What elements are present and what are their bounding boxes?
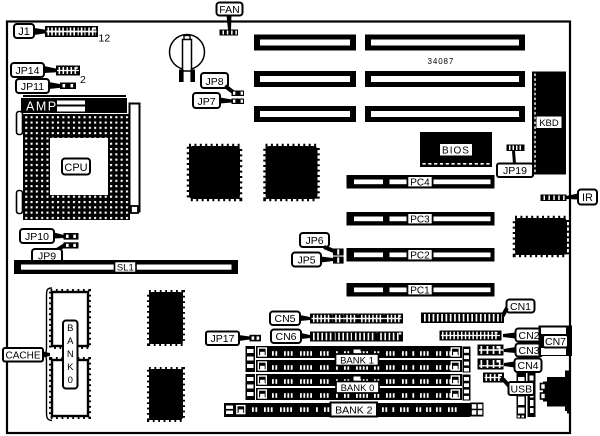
svg-text:JP10: JP10 (25, 231, 49, 243)
svg-text:CN1: CN1 (510, 301, 531, 313)
svg-text:JP6: JP6 (305, 235, 323, 247)
svg-text:JP19: JP19 (503, 165, 527, 177)
svg-text:PC3: PC3 (410, 214, 430, 225)
svg-text:PC1: PC1 (410, 285, 430, 296)
svg-text:12: 12 (99, 33, 111, 45)
svg-text:K: K (67, 362, 74, 373)
svg-text:PC4: PC4 (410, 177, 430, 188)
svg-text:CN3: CN3 (518, 345, 539, 357)
svg-text:IR: IR (582, 192, 593, 204)
svg-text:BANK 2: BANK 2 (335, 405, 373, 417)
svg-text:B: B (67, 323, 73, 334)
svg-text:CN7: CN7 (545, 336, 566, 348)
svg-text:BANK 1: BANK 1 (340, 355, 374, 366)
svg-text:AMP: AMP (26, 100, 58, 114)
svg-text:KBD: KBD (539, 118, 559, 129)
svg-text:2: 2 (80, 74, 86, 86)
svg-text:JP5: JP5 (297, 255, 315, 267)
svg-text:FAN: FAN (219, 4, 239, 16)
svg-text:PC2: PC2 (410, 250, 430, 261)
svg-text:SL1: SL1 (117, 263, 134, 274)
svg-text:CPU: CPU (64, 162, 87, 174)
svg-text:BANK 0: BANK 0 (341, 383, 375, 394)
svg-text:CN2: CN2 (518, 330, 539, 342)
svg-text:JP8: JP8 (205, 76, 223, 88)
svg-text:CACHE: CACHE (5, 351, 40, 362)
svg-text:CN5: CN5 (274, 313, 295, 325)
svg-text:CN4: CN4 (517, 360, 538, 372)
svg-text:N: N (67, 349, 74, 360)
svg-text:A: A (67, 336, 74, 347)
svg-text:CN6: CN6 (275, 331, 296, 343)
svg-text:JP11: JP11 (21, 81, 44, 93)
svg-text:BIOS: BIOS (442, 145, 470, 156)
svg-text:JP17: JP17 (211, 333, 235, 345)
svg-text:JP14: JP14 (16, 65, 40, 77)
svg-text:USB: USB (511, 384, 533, 396)
svg-text:J1: J1 (18, 26, 30, 38)
svg-text:0: 0 (68, 375, 73, 386)
svg-text:JP7: JP7 (197, 96, 215, 108)
svg-text:34087: 34087 (428, 57, 455, 66)
